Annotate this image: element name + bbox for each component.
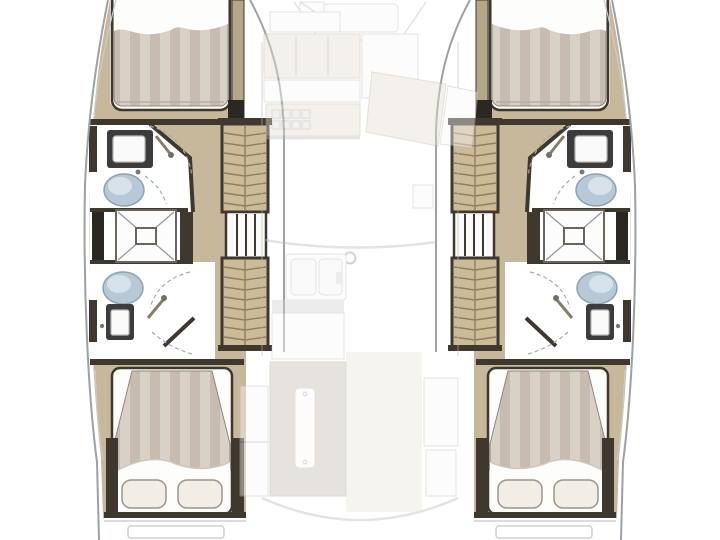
galley-counter-top <box>264 34 360 78</box>
cockpit-floor <box>346 352 422 512</box>
catamaran-floor-plan <box>0 0 720 540</box>
settee-curve <box>264 240 436 248</box>
starboard-hull-mirror <box>436 0 635 540</box>
saloon-side-box <box>413 185 433 208</box>
cockpit-bench-starboard-upper <box>424 378 458 446</box>
floor-plan-canvas <box>0 0 720 540</box>
sink-faucet-icon <box>336 272 343 284</box>
cockpit-bench-port <box>240 386 268 496</box>
starboard-hull <box>436 0 635 540</box>
galley-upper-cabinet <box>270 12 340 32</box>
counter-shadow-band <box>272 300 344 313</box>
sink-basin-left <box>291 259 316 295</box>
cockpit-bench-starboard-lower <box>426 450 456 496</box>
galley-counter-lower <box>266 104 360 136</box>
galley-drawer-band <box>264 80 360 102</box>
table-runner <box>295 388 315 468</box>
galley-lower-cabinet <box>272 313 344 359</box>
nav-seat <box>366 72 446 146</box>
